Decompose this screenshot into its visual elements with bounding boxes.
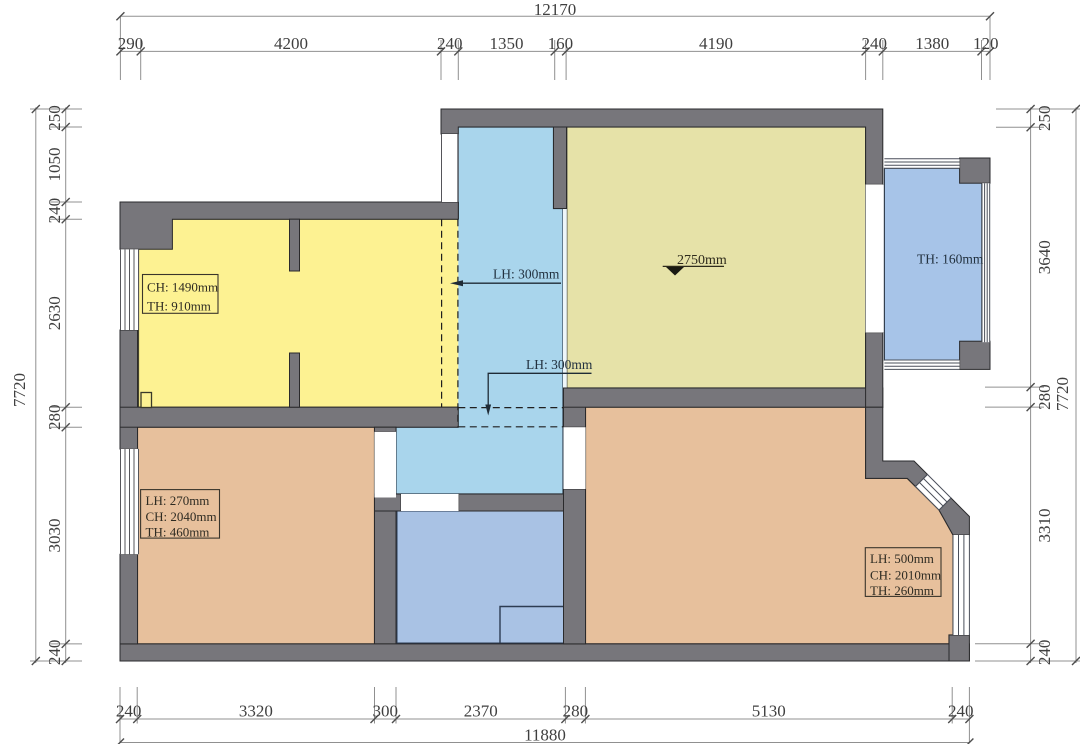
svg-text:7720: 7720 xyxy=(10,373,29,407)
svg-text:3310: 3310 xyxy=(1035,509,1054,543)
svg-text:LH: 300mm: LH: 300mm xyxy=(493,267,560,282)
svg-text:240: 240 xyxy=(861,34,887,53)
svg-text:240: 240 xyxy=(45,198,64,224)
svg-text:250: 250 xyxy=(1035,105,1054,131)
svg-text:TH: 260mm: TH: 260mm xyxy=(870,583,934,598)
svg-text:LH: 300mm: LH: 300mm xyxy=(526,357,593,372)
svg-text:2630: 2630 xyxy=(45,296,64,330)
svg-text:CH: 2040mm: CH: 2040mm xyxy=(146,509,217,524)
svg-text:4200: 4200 xyxy=(274,34,308,53)
svg-text:290: 290 xyxy=(118,34,144,53)
svg-text:280: 280 xyxy=(563,702,589,721)
svg-text:160: 160 xyxy=(548,34,574,53)
svg-text:240: 240 xyxy=(1035,640,1054,666)
svg-text:120: 120 xyxy=(973,34,999,53)
svg-text:7720: 7720 xyxy=(1053,377,1072,411)
svg-text:2370: 2370 xyxy=(464,702,498,721)
svg-text:240: 240 xyxy=(45,640,64,666)
svg-text:4190: 4190 xyxy=(699,34,733,53)
svg-text:240: 240 xyxy=(948,702,974,721)
svg-text:LH: 500mm: LH: 500mm xyxy=(870,551,934,566)
svg-text:240: 240 xyxy=(116,702,142,721)
svg-text:1050: 1050 xyxy=(45,148,64,182)
svg-text:11880: 11880 xyxy=(524,726,566,744)
svg-text:1350: 1350 xyxy=(490,34,524,53)
svg-text:LH: 270mm: LH: 270mm xyxy=(146,493,210,508)
svg-text:3030: 3030 xyxy=(45,519,64,553)
svg-text:3640: 3640 xyxy=(1035,240,1054,274)
svg-text:1380: 1380 xyxy=(915,34,949,53)
svg-text:CH: 2010mm: CH: 2010mm xyxy=(870,567,941,582)
svg-text:240: 240 xyxy=(437,34,463,53)
svg-text:TH: 910mm: TH: 910mm xyxy=(147,299,211,314)
svg-text:280: 280 xyxy=(45,404,64,430)
svg-text:TH: 160mm: TH: 160mm xyxy=(917,252,984,267)
svg-text:3320: 3320 xyxy=(239,702,273,721)
svg-text:280: 280 xyxy=(1035,384,1054,410)
svg-text:250: 250 xyxy=(45,105,64,131)
svg-text:300: 300 xyxy=(373,702,399,721)
svg-text:5130: 5130 xyxy=(752,702,786,721)
svg-text:CH: 1490mm: CH: 1490mm xyxy=(147,280,218,295)
svg-text:12170: 12170 xyxy=(534,0,577,19)
svg-text:TH: 460mm: TH: 460mm xyxy=(146,525,210,540)
